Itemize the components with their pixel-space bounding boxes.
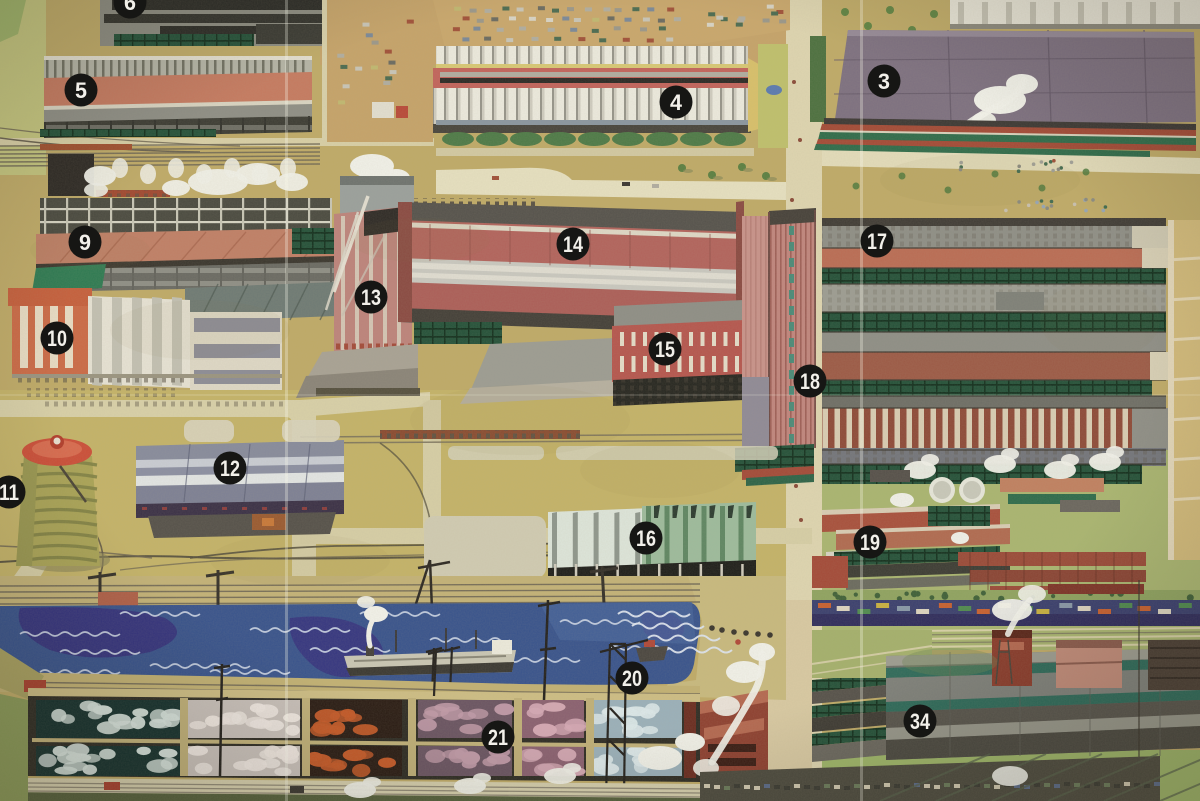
svg-text:5: 5 xyxy=(75,78,87,103)
svg-text:18: 18 xyxy=(800,369,820,394)
svg-text:6: 6 xyxy=(124,0,136,15)
svg-text:20: 20 xyxy=(622,666,642,691)
svg-text:12: 12 xyxy=(220,456,240,481)
svg-text:17: 17 xyxy=(867,229,887,254)
svg-text:10: 10 xyxy=(47,326,67,351)
svg-text:13: 13 xyxy=(361,285,381,310)
svg-text:11: 11 xyxy=(0,480,19,505)
svg-text:15: 15 xyxy=(655,337,675,362)
svg-text:16: 16 xyxy=(636,526,656,551)
svg-text:19: 19 xyxy=(860,530,880,555)
svg-text:34: 34 xyxy=(910,709,931,734)
svg-text:4: 4 xyxy=(670,90,683,115)
svg-text:3: 3 xyxy=(878,69,890,94)
svg-text:14: 14 xyxy=(563,232,584,257)
svg-text:9: 9 xyxy=(79,230,91,255)
svg-text:21: 21 xyxy=(488,725,508,750)
